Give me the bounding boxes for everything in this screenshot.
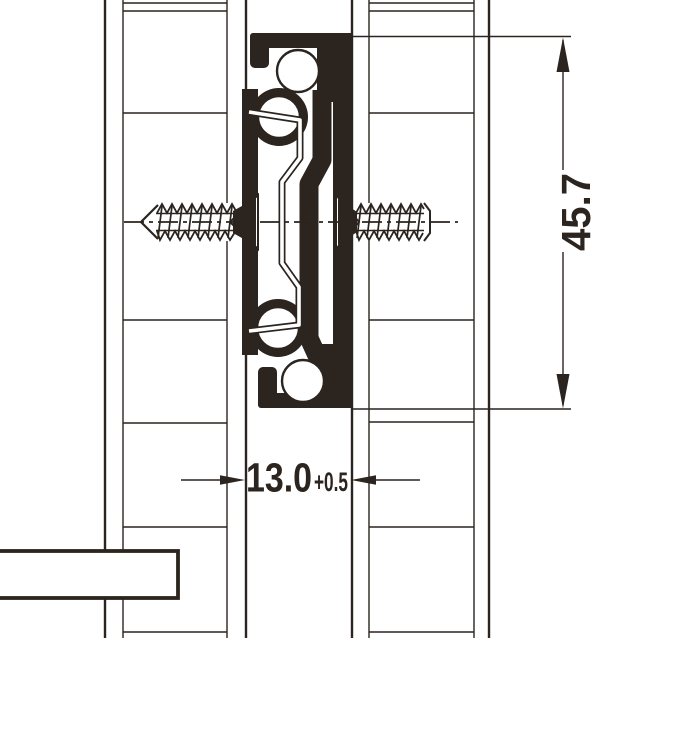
panel-hatch-rungs (123, 3, 227, 632)
drawer-side-panel (105, 0, 246, 638)
height-dimension-label: 45.7 (553, 173, 599, 251)
arrowhead-right (220, 475, 245, 485)
gap-dimension-label: 13.0 (246, 455, 312, 501)
ball-bearing (282, 360, 324, 402)
drawer-bottom-panel (0, 551, 178, 598)
drawing-canvas: 45.7 13.0 +0.5 (0, 0, 675, 730)
gap-dimension: 13.0 +0.5 (181, 455, 420, 501)
arrowhead-left (351, 475, 376, 485)
cabinet-side-panel (352, 0, 489, 638)
ball-bearing (277, 50, 319, 92)
panel-hatch-rungs (369, 3, 474, 632)
arrowhead-down (557, 374, 570, 409)
slide-cross-section (124, 33, 458, 408)
drawer-slide-cross-section-drawing: 45.7 13.0 +0.5 (0, 0, 675, 730)
gap-dimension-tolerance: +0.5 (314, 467, 348, 497)
arrowhead-up (557, 38, 570, 73)
